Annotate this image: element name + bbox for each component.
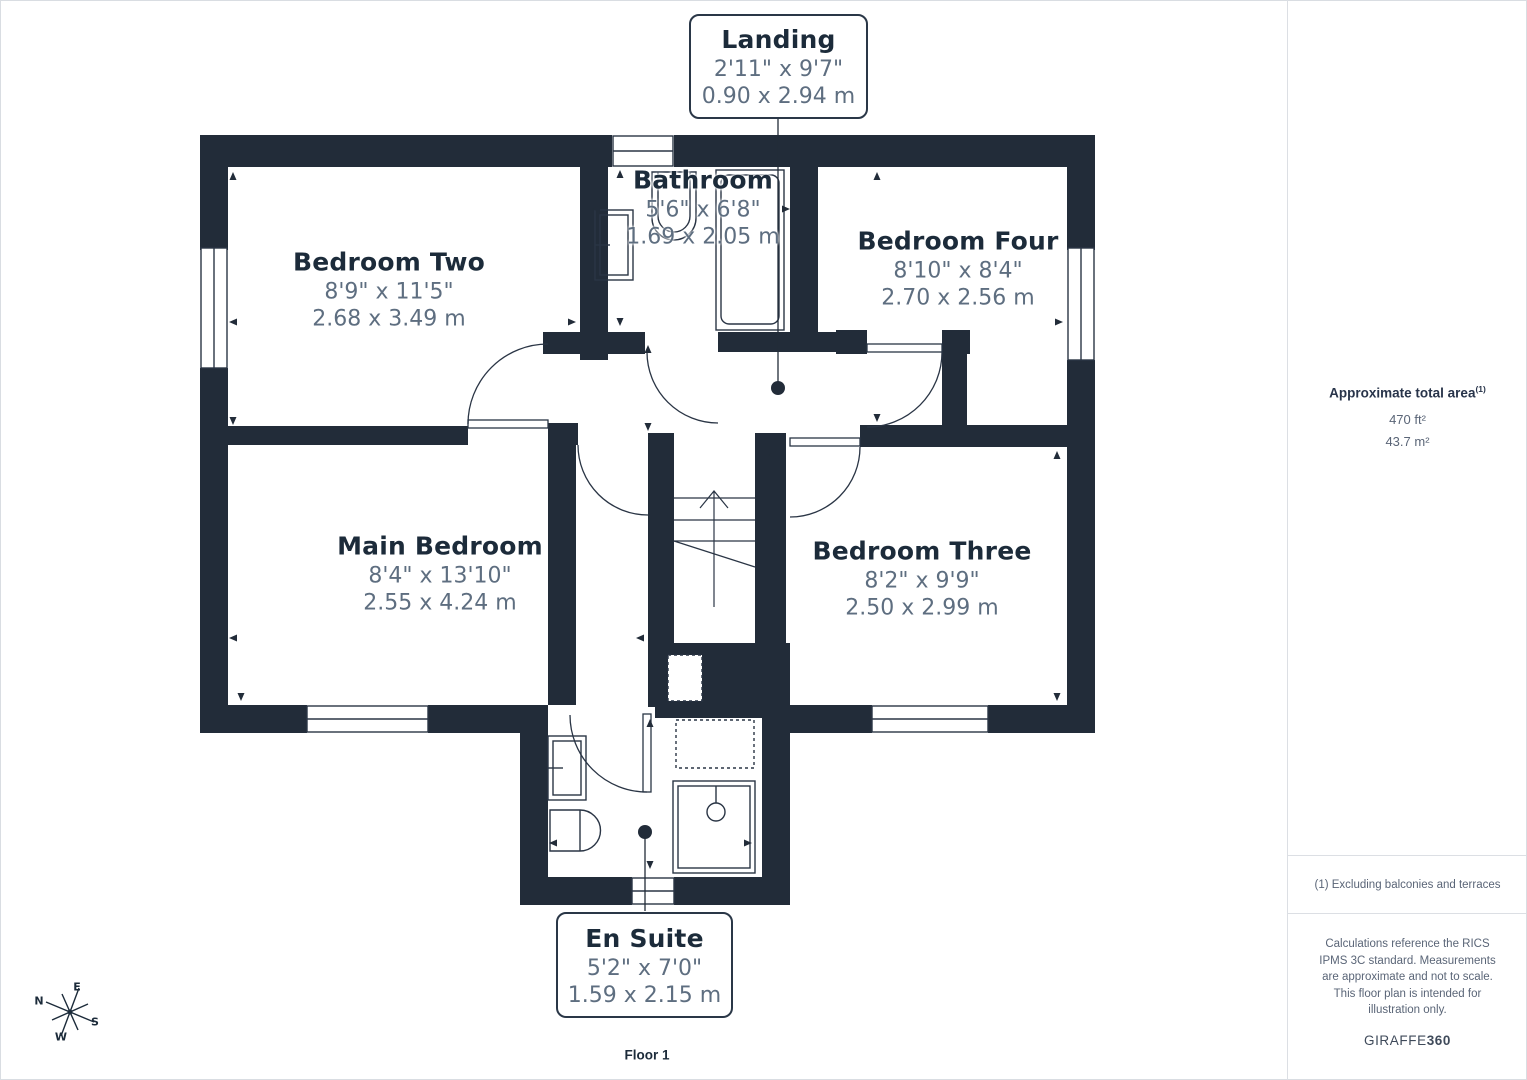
dimension-marker [1055, 319, 1063, 326]
floor-label: Floor 1 [624, 1048, 669, 1063]
landing-label-box: Landing 2'11" x 9'7" 0.90 x 2.94 m [689, 14, 868, 119]
floorplan-page: Bedroom Two 8'9" x 11'5" 2.68 x 3.49 m B… [0, 0, 1527, 1080]
dimension-marker [782, 206, 790, 213]
dimension-marker [230, 172, 237, 180]
landing-leader-dot [771, 381, 785, 395]
compass-letter-n: N [34, 995, 43, 1008]
dimension-marker [1054, 451, 1061, 459]
total-area-block: Approximate total area(1) 470 ft² 43.7 m… [1288, 384, 1527, 453]
room-dims-imperial: 5'2" x 7'0" [587, 955, 702, 982]
dimension-marker [636, 635, 644, 642]
disclaimer-text: Calculations reference the RICS IPMS 3C … [1288, 936, 1527, 1019]
dimension-marker [229, 319, 237, 326]
en-suite-label-box: En Suite 5'2" x 7'0" 1.59 x 2.15 m [556, 912, 733, 1018]
panel-divider-lower [1288, 913, 1526, 914]
dimension-marker [645, 423, 652, 431]
disclaimer-block: Calculations reference the RICS IPMS 3C … [1288, 936, 1527, 1048]
floor-plan-graphic [0, 0, 1527, 1080]
panel-left-divider [1287, 0, 1288, 1080]
footnote-block: (1) Excluding balconies and terraces [1288, 856, 1527, 913]
dimension-marker [230, 417, 237, 425]
dimension-marker [617, 318, 624, 326]
total-area-title-text: Approximate total area [1329, 386, 1475, 401]
stairs [674, 491, 755, 607]
compass-icon [46, 988, 94, 1036]
brand-suffix: 360 [1427, 1033, 1451, 1048]
total-area-superscript: (1) [1475, 384, 1485, 394]
dimension-marker [238, 693, 245, 701]
room-dims-metric: 0.90 x 2.94 m [702, 83, 855, 110]
dimension-marker [1054, 693, 1061, 701]
en-suite-leader-dot [638, 825, 652, 839]
footnote-text: (1) Excluding balconies and terraces [1314, 879, 1500, 891]
compass-letter-w: W [55, 1031, 67, 1044]
total-area-ft: 470 ft² [1288, 409, 1527, 431]
dimension-marker [744, 840, 752, 847]
dimension-marker [647, 861, 654, 869]
compass-letter-s: S [91, 1016, 99, 1029]
room-dims-imperial: 2'11" x 9'7" [714, 56, 843, 83]
brand-logo: GIRAFFE360 [1288, 1033, 1527, 1048]
room-name: En Suite [585, 922, 703, 955]
dimension-marker [645, 345, 652, 353]
room-name: Landing [721, 23, 835, 56]
total-area-m: 43.7 m² [1288, 431, 1527, 453]
compass-letter-e: E [73, 981, 81, 994]
dimension-marker [874, 172, 881, 180]
total-area-title: Approximate total area(1) [1288, 384, 1527, 401]
dimension-marker [874, 414, 881, 422]
dimension-marker [229, 635, 237, 642]
dimension-marker [568, 319, 576, 326]
dimension-marker [617, 170, 624, 178]
brand-name: GIRAFFE [1364, 1033, 1427, 1048]
room-dims-metric: 1.59 x 2.15 m [568, 982, 721, 1009]
